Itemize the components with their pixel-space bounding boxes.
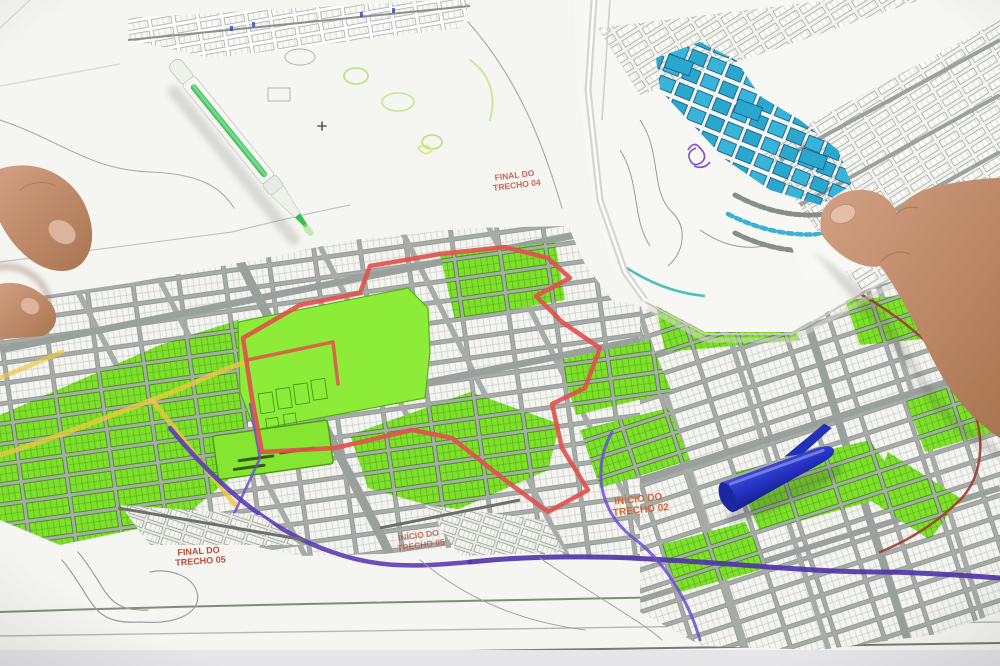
photo-vignette — [0, 0, 1000, 666]
map-scene: FINAL DO TRECHO 04 INÍCIO DO TRECHO 02 F… — [0, 0, 1000, 666]
photo-of-maps: FINAL DO TRECHO 04 INÍCIO DO TRECHO 02 F… — [0, 0, 1000, 666]
